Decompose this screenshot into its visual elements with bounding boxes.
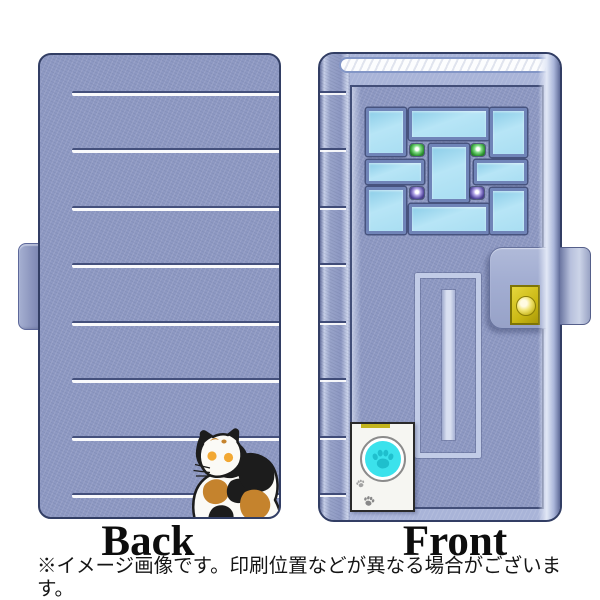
window-pane [474,160,527,184]
window-pane [409,204,489,234]
stripe-line [72,91,279,96]
paw-print-icon [369,445,397,473]
stripe-line [320,263,346,267]
window-pane [490,188,527,234]
clasp-button-circle [516,296,536,316]
window-pane [429,144,469,202]
doorbell-slot [361,424,390,428]
disclaimer-note-1: ※イメージ画像です。印刷位置などが異なる場合がございます。 [37,555,597,600]
stripe-line [72,148,279,153]
clasp-snap-button [510,285,540,325]
paw-print-icon [361,493,378,510]
paw-button-face [365,441,401,477]
doorbell-plate [350,422,415,512]
green-light-icon [410,144,424,156]
stripe-line [320,148,346,152]
paw-button [360,436,406,482]
window-pane [409,108,489,140]
stripe-line [320,206,346,210]
purple-light-icon [470,187,484,199]
window-pane [366,108,406,156]
green-light-icon [471,144,485,156]
phone-case-back-view [38,53,281,519]
stripe-line [320,321,346,325]
stripe-line [72,378,279,383]
paw-print-icon [354,477,368,491]
stripe-line [72,321,279,326]
phone-case-front-view [318,52,562,522]
case-spine [320,54,350,520]
window-pane [366,187,406,234]
stripe-line [320,493,346,497]
stripe-line [320,436,346,440]
door-handle-slot [442,290,455,440]
window-pane [366,160,424,184]
purple-light-icon [410,187,424,199]
disclaimer-notes: ※イメージ画像です。印刷位置などが異なる場合がございます。 ※Back側には機種… [37,555,597,600]
stripe-line [72,263,279,268]
magnetic-strap-front [560,247,591,325]
case-top-edge [339,57,557,73]
product-image: Back Front ※イメージ画像です。印刷位置などが異なる場合がございます。… [0,0,600,600]
window-pane [490,108,527,157]
stripe-line [72,206,279,211]
calico-cat-illustration [187,427,281,519]
stripe-line [320,378,346,382]
stripe-line [320,91,346,95]
case-edge-highlight [538,54,560,520]
